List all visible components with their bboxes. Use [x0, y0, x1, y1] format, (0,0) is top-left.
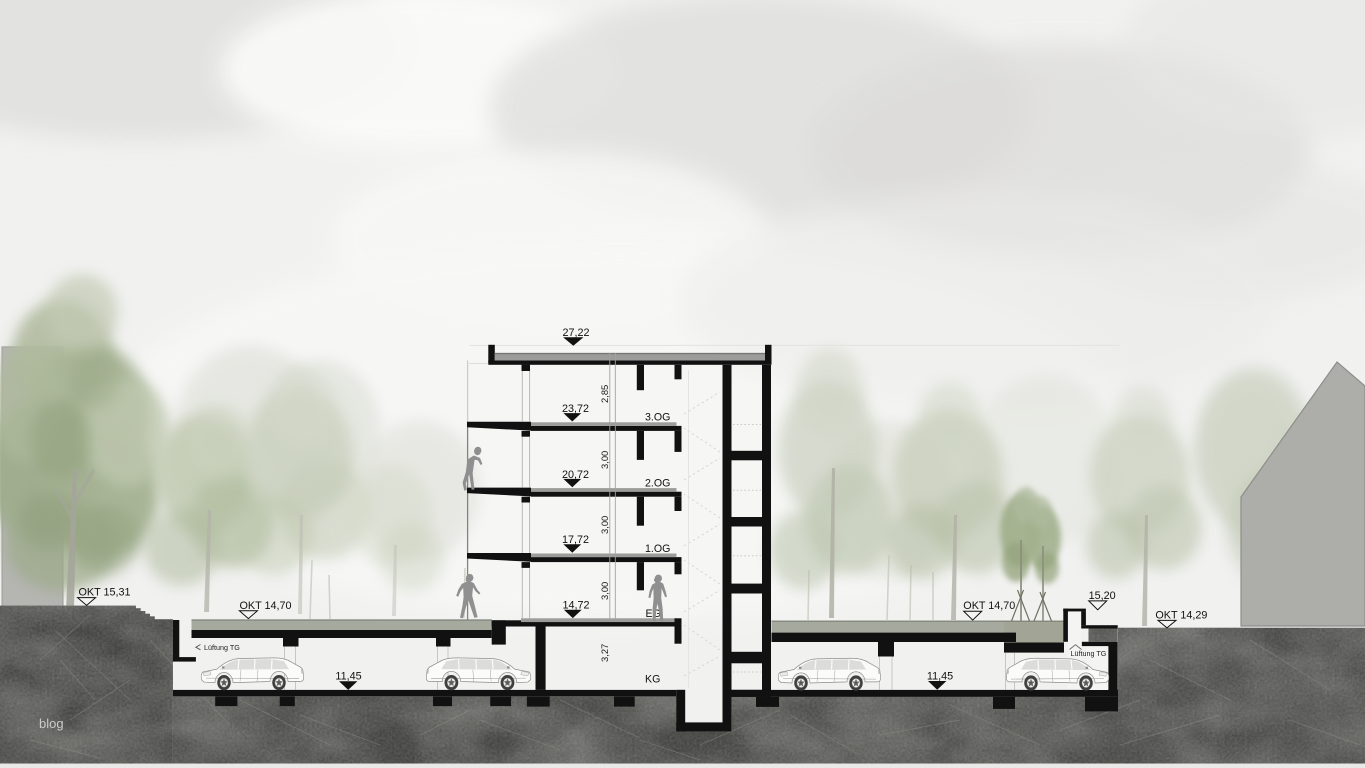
- svg-text:KG: KG: [645, 674, 660, 686]
- svg-text:OKT 14,70: OKT 14,70: [240, 600, 292, 612]
- svg-text:3,27: 3,27: [599, 644, 610, 662]
- svg-text:1.OG: 1.OG: [645, 543, 670, 555]
- svg-text:blog: blog: [39, 716, 64, 731]
- svg-text:3,00: 3,00: [599, 451, 610, 469]
- svg-text:Lüftung TG: Lüftung TG: [1071, 649, 1107, 658]
- svg-text:3,00: 3,00: [599, 582, 610, 600]
- svg-text:2,85: 2,85: [599, 385, 610, 403]
- svg-text:3,00: 3,00: [599, 516, 610, 534]
- svg-text:11,45: 11,45: [927, 671, 953, 683]
- svg-text:OKT 15,31: OKT 15,31: [79, 587, 131, 599]
- svg-text:OKT 14,70: OKT 14,70: [963, 600, 1015, 612]
- svg-text:2.OG: 2.OG: [645, 477, 670, 489]
- svg-text:11,45: 11,45: [335, 670, 361, 682]
- svg-text:Lüftung TG: Lüftung TG: [204, 643, 240, 652]
- svg-text:3.OG: 3.OG: [645, 412, 670, 424]
